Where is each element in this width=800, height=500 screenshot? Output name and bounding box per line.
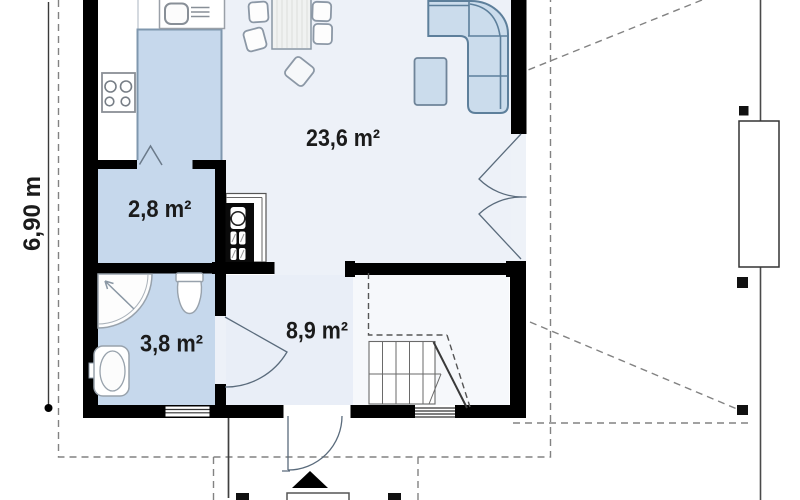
svg-text:23,6 m²: 23,6 m²	[306, 125, 380, 152]
svg-text:8,9 m²: 8,9 m²	[286, 318, 348, 345]
svg-text:3,8 m²: 3,8 m²	[140, 331, 203, 358]
svg-text:2,8 m²: 2,8 m²	[128, 196, 192, 223]
svg-text:6,90 m: 6,90 m	[19, 176, 46, 251]
